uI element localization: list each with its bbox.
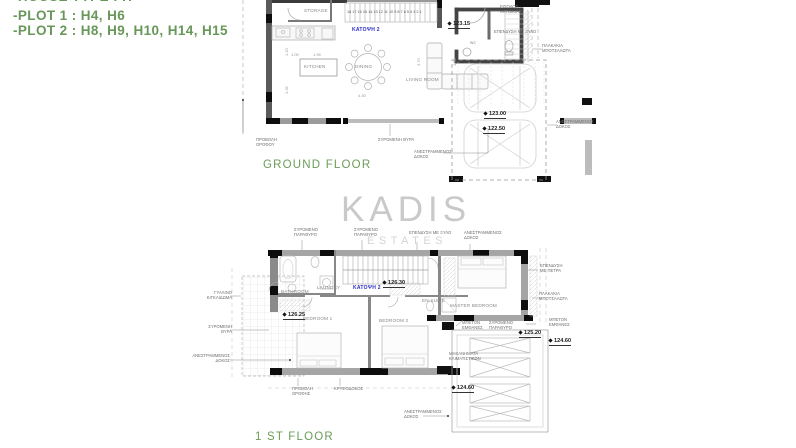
ff-annot-sliding-window-3: ΣΥΡΟΜΕΝΟ ΠΑΡΑΘΥΡΟ bbox=[489, 320, 513, 331]
ff-ensuite-label: EN-SUITE bbox=[422, 298, 445, 304]
gf-dining-label: DINING bbox=[355, 64, 372, 70]
gf-annot-inverted-beam-bottom: ΑΝΕΣΤΡΑΜΜΕΝΟΣ ΔΟΚΟΣ bbox=[414, 149, 452, 160]
ff-annot-sliding-window-1: ΣΥΡΟΜΕΝΟ ΠΑΡΑΘΥΡΟ bbox=[294, 227, 318, 238]
ff-level-124-60-right: 124.60 bbox=[549, 338, 571, 346]
ff-annot-exposed-concrete-1: ΜΠΕΤΟΝ ΕΜΦΑΝΕΣ bbox=[462, 320, 483, 331]
labels-layer: STORAGEKITCHENDININGLIVING ROOMwc18 17 1… bbox=[0, 0, 796, 448]
gf-dim-6: 1.35 bbox=[284, 86, 289, 94]
gf-kitchen-label: KITCHEN bbox=[304, 64, 326, 70]
gf-dim-1: 1.00 bbox=[291, 52, 299, 57]
ff-annot-stone-cladding: ΕΠΕΝΔΥΣΗ ΜΕ ΠΕΤΡΑ bbox=[540, 263, 563, 274]
gf-dim-4: 3.70 bbox=[416, 58, 421, 66]
ff-annot-wood-cladding: ΕΠΕΝΔΥΣΗ ΜΕ ΞΥΛΟ bbox=[409, 230, 451, 235]
gf-stair-numbers: 18 17 16 15 14 13 12 11 10 9 8 7 6 5 4 3… bbox=[347, 10, 422, 15]
ff-annot-pebble-tiles: ΠΛΑΚΑΚΙΑ ΜΠΟΤΣΑΛΩΤΑ bbox=[539, 291, 568, 302]
gf-plan-id: ΚΑΤΟΨΗ 2 bbox=[352, 27, 380, 34]
ff-annot-roof-projection: ΠΡΟΒΟΛΗ ΟΡΟΦΗΣ bbox=[292, 386, 313, 397]
gf-level-123-00: 123.00 bbox=[484, 111, 506, 119]
gf-living-room-label: LIVING ROOM bbox=[406, 77, 439, 83]
ff-annot-sliding-window-2: ΣΥΡΟΜΕΝΟ ΠΑΡΑΘΥΡΟ bbox=[354, 227, 378, 238]
ff-annot-glass-railing: ΓΥΑΛΙΝΟ ΚΙΓΚΛΙΔΩΜΑ bbox=[186, 290, 232, 301]
first-floor-title: 1 ST FLOOR bbox=[255, 430, 334, 445]
ff-laundry-label: LAUNDRY bbox=[317, 285, 340, 291]
gf-annot-entrance: ΕΙΣΟΔΟΣ ΚΑΤΟΙΚΙΑΣ bbox=[500, 4, 522, 15]
gf-dim-7: 1.70 bbox=[452, 58, 457, 66]
ff-level-126-25: 126.25 bbox=[283, 312, 305, 320]
gf-level-122-50: 122.50 bbox=[483, 126, 505, 134]
gf-annot-inverted-beam-right: ΑΝΕΣΤΡΑΜΜΕΝΟΣ ΔΟΚΟΣ bbox=[556, 119, 594, 130]
gf-annot-wood-cladding: ΕΠΕΝΔΥΣΗ ΜΕ ΞΥΛΟ bbox=[494, 29, 536, 34]
gf-annot-pebble-tiles: ΠΛΑΚΑΚΙΑ ΜΠΟΤΣΑΛΩΤΑ bbox=[542, 43, 571, 54]
ff-bedroom1-label: BEDROOM 1 bbox=[303, 316, 332, 322]
gf-level-123-15: 123.15 bbox=[448, 21, 470, 29]
gf-annot-roof-projection: ΠΡΟΒΟΛΗ ΟΡΟΦΟΥ bbox=[256, 137, 277, 148]
ff-annot-inverted-beam-left: ΑΝΕΣΤΡΑΜΜΕΝΟΣ ΔΟΚΟΣ bbox=[184, 353, 230, 364]
gf-dim-3: 4.30 bbox=[358, 93, 366, 98]
ff-level-125-20: 125.20 bbox=[519, 330, 541, 338]
ff-bedroom2-label: BEDROOM 2 bbox=[379, 318, 408, 324]
ff-annot-inverted-beam-bottom: ΑΝΕΣΤΡΑΜΜΕΝΟΣ ΔΟΚΟΣ bbox=[404, 409, 442, 420]
ff-master-bedroom-label: MASTER BEDROOM bbox=[450, 303, 497, 309]
ff-annot-inverted-beam-top: ΑΝΕΣΤΡΑΜΜΕΝΟΣ ΔΟΚΟΣ bbox=[464, 230, 502, 241]
ff-annot-ac-units: ΜΗΧΑΝΗΜΑΤΑ ΚΛΙΜΑΤΙΣΤΙΚΩΝ bbox=[449, 351, 481, 362]
ff-annot-exposed-concrete-2: ΜΠΕΤΟΝ ΕΜΦΑΝΕΣ bbox=[549, 317, 570, 328]
ff-plan-id: ΚΑΤΟΨΗ 2 bbox=[353, 285, 381, 292]
ff-level-126-30: 126.30 bbox=[383, 280, 405, 288]
gf-wc-label: wc bbox=[470, 40, 476, 46]
gf-annot-sliding-door: ΣΥΡΟΜΕΝΗ ΘΥΡΑ bbox=[378, 137, 414, 142]
gf-storage-label: STORAGE bbox=[304, 8, 328, 14]
ff-bathroom-label: BATHROOM bbox=[281, 289, 309, 295]
ff-level-124-60-left: 124.60 bbox=[452, 385, 474, 393]
ff-annot-hidden-beam: ΚΡΥΦΟΔΟΚΟΣ bbox=[334, 386, 363, 391]
gf-dim-2: 1.95 bbox=[313, 52, 321, 57]
ground-floor-title: GROUND FLOOR bbox=[263, 158, 371, 173]
gf-dim-5: 1.20 bbox=[284, 48, 289, 56]
ff-annot-sliding-door: ΣΥΡΟΜΕΝΗ ΘΥΡΑ bbox=[186, 324, 232, 335]
floor-plan-sheet: -HOUSE TYPE : H -PLOT 1 : H4, H6 -PLOT 2… bbox=[0, 0, 796, 448]
